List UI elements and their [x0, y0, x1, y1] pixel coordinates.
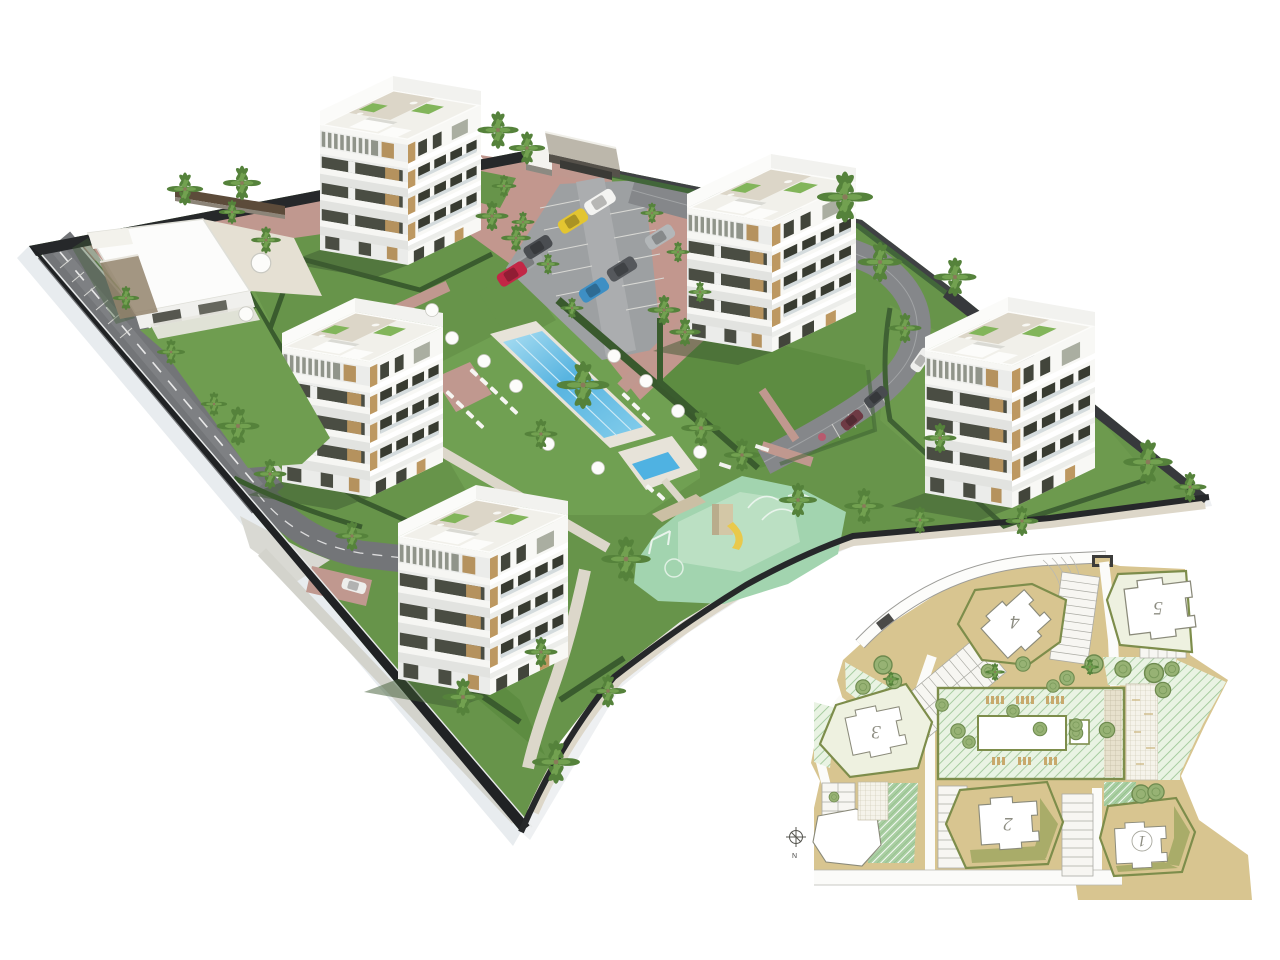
- svg-text:N: N: [792, 853, 797, 860]
- svg-text:4: 4: [1010, 611, 1020, 632]
- svg-text:5: 5: [1153, 597, 1163, 618]
- svg-text:1: 1: [1138, 832, 1146, 849]
- svg-text:3: 3: [871, 721, 882, 742]
- svg-text:2: 2: [1003, 813, 1013, 834]
